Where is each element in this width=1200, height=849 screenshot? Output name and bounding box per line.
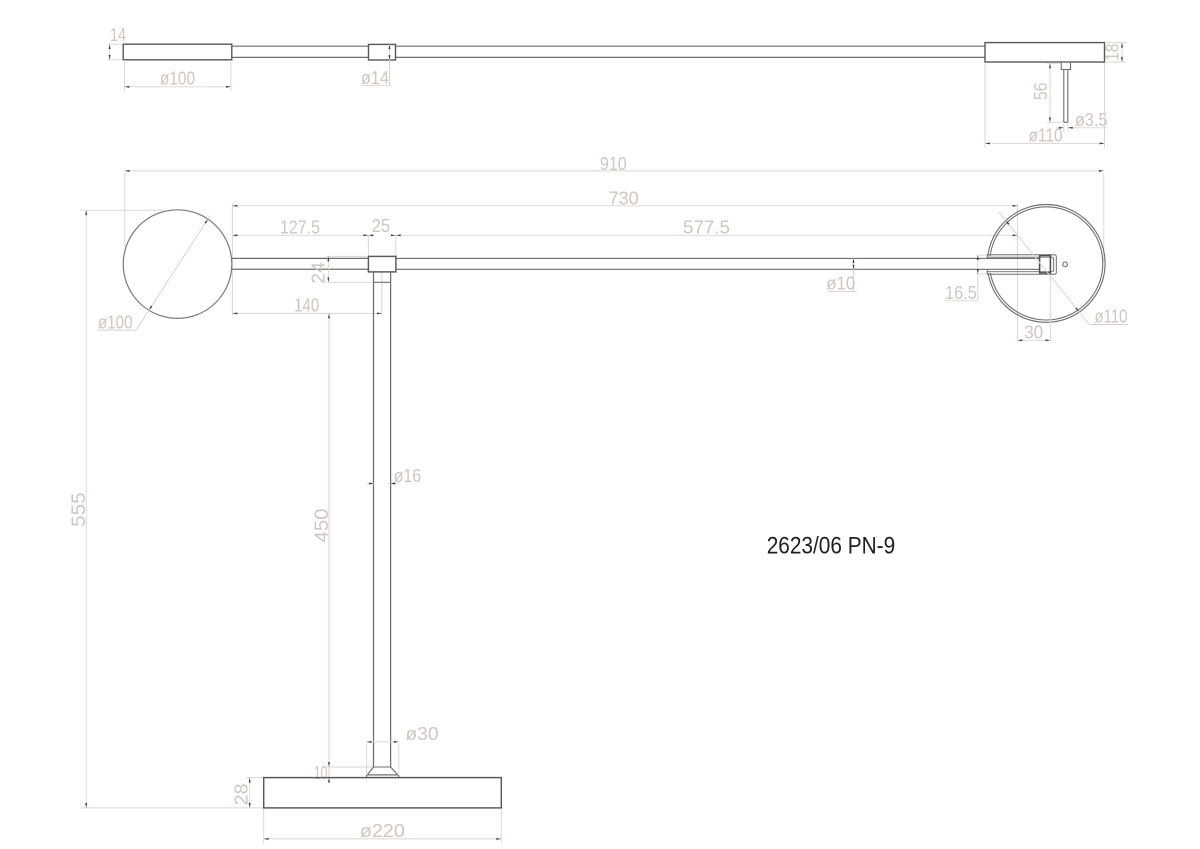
svg-text:30: 30: [1024, 323, 1043, 343]
svg-text:16.5: 16.5: [945, 283, 977, 303]
svg-text:2623/06 PN-9: 2623/06 PN-9: [767, 532, 896, 559]
svg-text:450: 450: [312, 509, 333, 543]
svg-text:555: 555: [69, 492, 90, 526]
svg-text:910: 910: [600, 154, 627, 174]
svg-text:25: 25: [372, 216, 390, 236]
svg-text:ø14: ø14: [361, 68, 389, 88]
svg-text:24: 24: [308, 262, 328, 284]
svg-text:ø16: ø16: [394, 466, 422, 486]
svg-text:730: 730: [609, 189, 639, 209]
svg-text:127.5: 127.5: [280, 217, 320, 237]
svg-text:56: 56: [1031, 82, 1051, 100]
svg-text:18: 18: [1103, 44, 1123, 62]
svg-text:577.5: 577.5: [683, 217, 730, 237]
svg-text:140: 140: [294, 296, 319, 316]
svg-text:10: 10: [314, 763, 328, 783]
svg-text:ø110: ø110: [1095, 307, 1128, 327]
svg-text:ø110: ø110: [1029, 126, 1063, 146]
svg-text:28: 28: [230, 783, 251, 805]
svg-text:ø10: ø10: [826, 274, 855, 294]
svg-text:ø100: ø100: [98, 312, 133, 332]
svg-text:ø100: ø100: [160, 69, 195, 89]
svg-text:ø220: ø220: [360, 821, 405, 841]
svg-text:ø30: ø30: [406, 724, 439, 744]
svg-text:ø3.5: ø3.5: [1075, 110, 1108, 130]
svg-text:14: 14: [110, 25, 126, 45]
